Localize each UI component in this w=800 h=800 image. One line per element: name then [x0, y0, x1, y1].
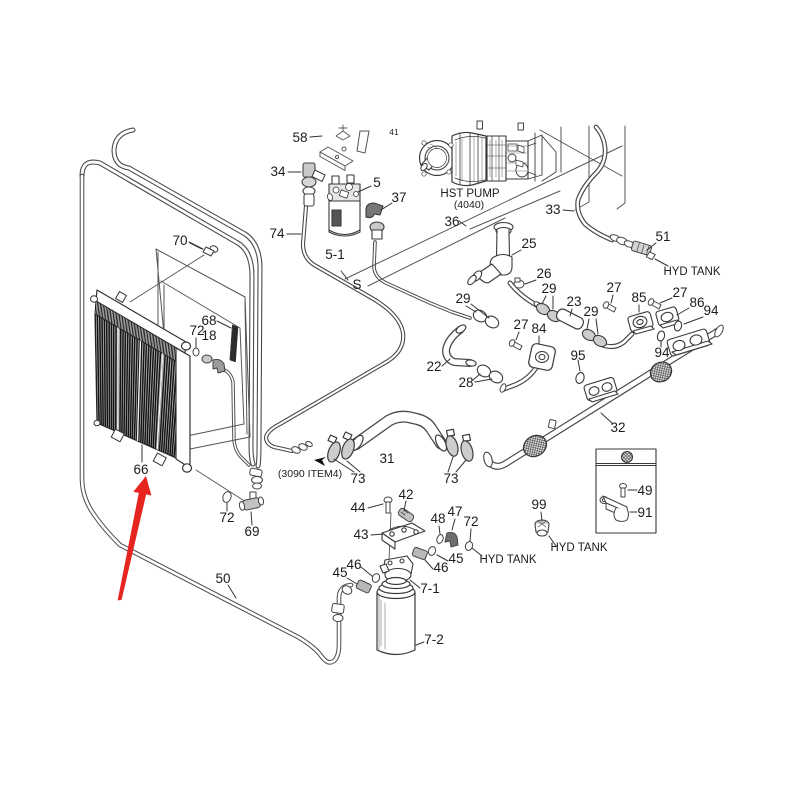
svg-text:32: 32 — [610, 420, 625, 435]
svg-text:47: 47 — [447, 504, 462, 519]
svg-text:(4040): (4040) — [454, 199, 484, 211]
svg-text:44: 44 — [350, 500, 366, 515]
svg-text:46: 46 — [433, 560, 448, 575]
svg-text:74: 74 — [269, 226, 285, 241]
svg-text:72: 72 — [189, 323, 204, 338]
svg-text:94: 94 — [703, 303, 719, 318]
svg-text:43: 43 — [353, 527, 368, 542]
svg-text:27: 27 — [513, 317, 528, 332]
svg-text:7-2: 7-2 — [424, 632, 444, 647]
svg-text:66: 66 — [133, 462, 148, 477]
svg-text:29: 29 — [541, 281, 556, 296]
svg-text:41: 41 — [389, 127, 399, 137]
svg-text:50: 50 — [215, 571, 230, 586]
svg-text:34: 34 — [270, 164, 286, 179]
svg-text:23: 23 — [566, 294, 581, 309]
svg-text:27: 27 — [606, 280, 621, 295]
svg-text:73: 73 — [443, 471, 458, 486]
svg-text:7-1: 7-1 — [420, 581, 440, 596]
svg-text:5-1: 5-1 — [325, 247, 345, 262]
svg-text:58: 58 — [292, 130, 307, 145]
svg-text:25: 25 — [521, 236, 536, 251]
svg-text:S: S — [352, 277, 361, 292]
svg-text:HYD TANK: HYD TANK — [550, 542, 607, 554]
svg-text:29: 29 — [583, 304, 598, 319]
svg-text:31: 31 — [379, 451, 394, 466]
svg-text:29: 29 — [455, 291, 470, 306]
svg-text:27: 27 — [672, 285, 687, 300]
svg-text:37: 37 — [391, 190, 406, 205]
svg-text:84: 84 — [531, 321, 547, 336]
svg-text:85: 85 — [631, 290, 646, 305]
svg-text:72: 72 — [463, 514, 478, 529]
svg-text:28: 28 — [458, 375, 473, 390]
svg-text:46: 46 — [346, 557, 361, 572]
svg-text:48: 48 — [430, 511, 445, 526]
svg-text:91: 91 — [637, 505, 652, 520]
svg-text:45: 45 — [448, 551, 463, 566]
svg-text:49: 49 — [637, 483, 652, 498]
svg-text:70: 70 — [172, 233, 187, 248]
svg-text:73: 73 — [350, 471, 365, 486]
svg-text:26: 26 — [536, 266, 551, 281]
svg-text:42: 42 — [398, 487, 413, 502]
svg-text:69: 69 — [244, 524, 259, 539]
svg-text:HYD TANK: HYD TANK — [479, 554, 536, 566]
svg-text:36: 36 — [444, 214, 459, 229]
svg-text:51: 51 — [655, 229, 670, 244]
svg-text:5: 5 — [373, 175, 381, 190]
svg-text:99: 99 — [531, 497, 546, 512]
svg-text:HYD TANK: HYD TANK — [663, 266, 720, 278]
svg-text:22: 22 — [426, 359, 441, 374]
svg-text:94: 94 — [654, 345, 670, 360]
svg-text:33: 33 — [545, 202, 560, 217]
svg-text:45: 45 — [332, 565, 347, 580]
svg-text:(3090 ITEM4): (3090 ITEM4) — [278, 468, 342, 480]
svg-text:72: 72 — [219, 510, 234, 525]
svg-text:86: 86 — [689, 295, 704, 310]
